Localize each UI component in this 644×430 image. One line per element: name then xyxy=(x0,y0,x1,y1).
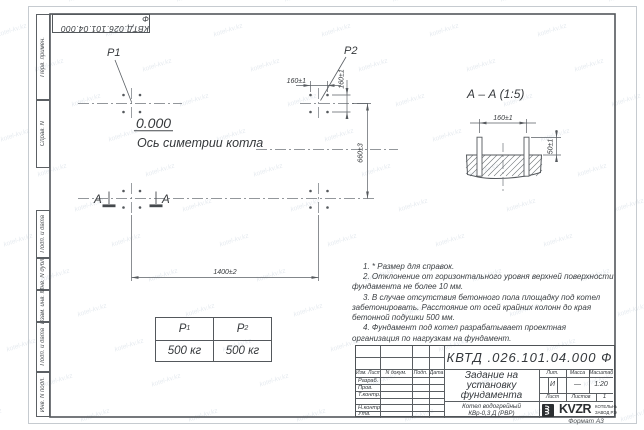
grid-line xyxy=(444,346,445,418)
tb-lit-header: Лит. xyxy=(539,369,566,377)
side-label: Подп. и дата xyxy=(40,328,46,366)
plan-dimension-arrows xyxy=(132,84,369,279)
side-box-podp-data-1: Подп. и дата xyxy=(36,210,50,258)
side-box-podp-data-2: Подп. и дата xyxy=(36,322,50,372)
tb-col-izm: Изм. Лист xyxy=(356,369,380,377)
tb-product-line2: КВр-0,3 Д (РВР) xyxy=(446,410,537,418)
section-view-title: А – А (1:5) xyxy=(466,87,524,101)
side-label: Подп. и дата xyxy=(40,215,46,253)
plan-anchor-bolts xyxy=(122,94,329,209)
dim-160-horizontal: 160±1 xyxy=(287,78,307,85)
corner-doc-number-box: КВТД.026.101.04.000 Ф xyxy=(52,14,150,33)
side-box-inv-dubl: Инв. N дубл. xyxy=(36,258,50,290)
side-label: Справ. N xyxy=(40,121,46,146)
loads-table: P1 P2 500 кг 500 кг xyxy=(155,317,272,362)
section-dim-160: 160±1 xyxy=(493,115,513,122)
tb-row-utv: Утв. xyxy=(358,411,380,418)
dim-1400: 1400±2 xyxy=(213,269,236,276)
tb-col-doc: N докум. xyxy=(380,369,412,377)
section-letter-right: А xyxy=(161,194,170,206)
side-label: Инв. N дубл. xyxy=(40,257,46,292)
tb-row-tkontr: Т.контр. xyxy=(358,392,380,399)
side-label: Инв. N подл. xyxy=(40,377,46,412)
grid-line xyxy=(356,398,444,399)
loads-value-row: 500 кг 500 кг xyxy=(156,340,271,363)
kvzr-logo-icon xyxy=(542,404,554,417)
note-4: 4. Фундамент под котел разрабатывает про… xyxy=(352,323,614,343)
tb-listov-label: Листов xyxy=(566,393,596,401)
format-label: Формат А3 xyxy=(556,418,616,425)
title-block: Изм. Лист N докум. Подп. Дата Разраб. Пр… xyxy=(355,345,615,417)
tb-col-data: Дата xyxy=(429,369,444,377)
dim-660: 660±3 xyxy=(358,143,365,163)
plan-texts: P1 P2 0.000 Ось симетрии котла А А 160±1… xyxy=(93,45,365,276)
tb-masshtab-header: Масштаб xyxy=(589,369,613,377)
side-label: Перв. примен. xyxy=(40,37,46,77)
grid-line xyxy=(557,377,558,393)
tb-row-razrab: Разраб. xyxy=(358,378,380,385)
tb-row-prov: Пров. xyxy=(358,385,380,392)
note-3: 3. В случае отсутствия бетонного пола пл… xyxy=(352,293,614,324)
plan-load-label-p1: P1 xyxy=(107,47,120,59)
tb-list-label: Лист xyxy=(539,393,566,401)
loads-header-row: P1 P2 xyxy=(156,318,271,340)
note-1: 1. * Размер для справок. xyxy=(352,262,614,272)
tb-lit-value: И xyxy=(548,377,557,393)
side-box-sprav-n: Справ. N xyxy=(36,100,50,168)
plan-dimensions xyxy=(132,80,372,281)
kvzr-logo-sub1: КОТЕЛЬНЫЙ xyxy=(595,404,617,409)
loads-p2-sub: 2 xyxy=(244,325,248,332)
plan-load-label-p2: P2 xyxy=(344,45,357,57)
section-view: А – А (1:5) xyxy=(466,87,561,191)
side-box-inv-podl: Инв. N подл. xyxy=(36,372,50,417)
tb-listov-value: 1 xyxy=(596,393,613,401)
boiler-symmetry-axis-label: Ось симетрии котла xyxy=(137,136,263,150)
section-dimension-arrows xyxy=(480,122,558,162)
kvzr-logo-text: KVZR xyxy=(555,401,595,417)
grid-line xyxy=(356,357,444,358)
tb-title-line3: фундамента xyxy=(446,391,537,401)
loads-value-p1: 500 кг xyxy=(156,341,213,363)
kvzr-logo-sub2: ЗАВОД РЭП xyxy=(595,410,617,415)
tb-title-line2: установку xyxy=(446,381,537,391)
plan-view: P1 P2 0.000 Ось симетрии котла А А 160±1… xyxy=(78,45,398,281)
tb-title-line1: Задание на xyxy=(446,371,537,381)
side-box-perv-primen: Перв. примен. xyxy=(36,14,50,100)
section-dim-50: 50±1 xyxy=(548,139,555,155)
note-2: 2. Отклонение от горизонтального уровня … xyxy=(352,272,614,292)
tb-doc-number: КВТД .026.101.04.000 Ф xyxy=(446,348,613,367)
side-box-vzam-inv: Взам. инв. N xyxy=(36,290,50,322)
loads-p1-sub: 1 xyxy=(186,325,190,332)
tb-massa-value: — xyxy=(566,377,589,393)
level-mark: 0.000 xyxy=(136,115,171,131)
tb-massa-header: Масса xyxy=(566,369,589,377)
side-label: Взам. инв. N xyxy=(40,289,46,324)
drawing-sheet: kotel-kv.kzkotel-kv.kzkotel-kv.kzkotel-k… xyxy=(0,0,644,430)
tb-masshtab-value: 1:20 xyxy=(589,377,613,393)
notes-block: 1. * Размер для справок. 2. Отклонение о… xyxy=(352,262,614,344)
loads-p1-base: P xyxy=(179,323,187,335)
tb-col-podp: Подп. xyxy=(412,369,429,377)
loads-header-p1: P1 xyxy=(156,318,213,340)
loads-header-p2: P2 xyxy=(213,318,271,340)
corner-doc-number: КВТД.026.101.04.000 Ф xyxy=(53,14,149,34)
section-letter-left: А xyxy=(93,194,102,206)
loads-value-p2: 500 кг xyxy=(213,341,271,363)
dim-160-vertical: 160±1 xyxy=(339,69,346,89)
plan-centerlines xyxy=(78,88,398,215)
